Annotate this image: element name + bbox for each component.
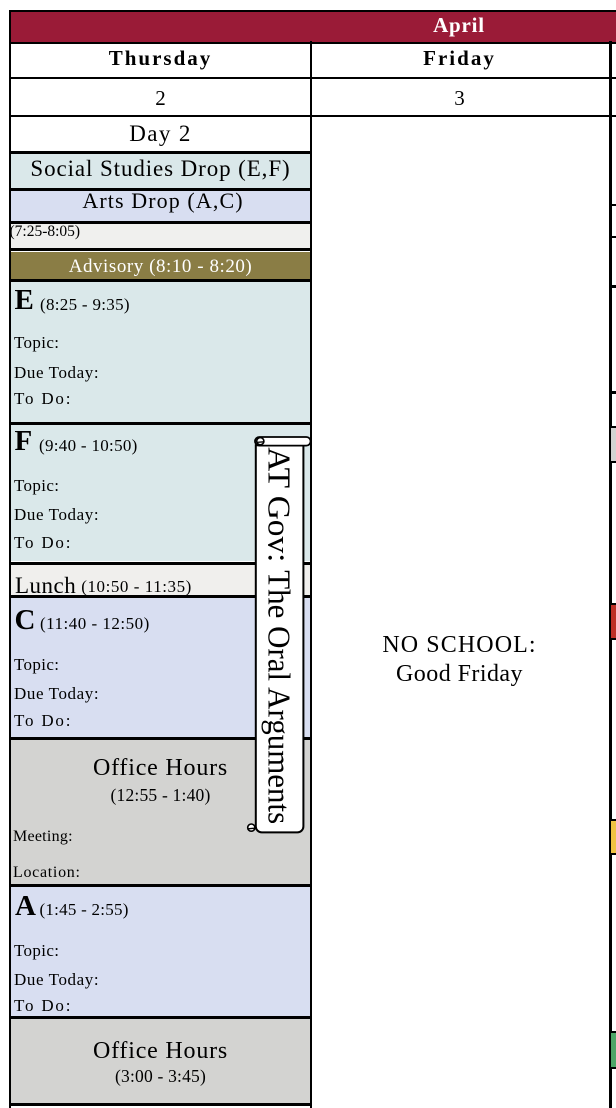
svg-text:AT Gov: The Oral Arguments: AT Gov: The Oral Arguments	[262, 447, 298, 824]
